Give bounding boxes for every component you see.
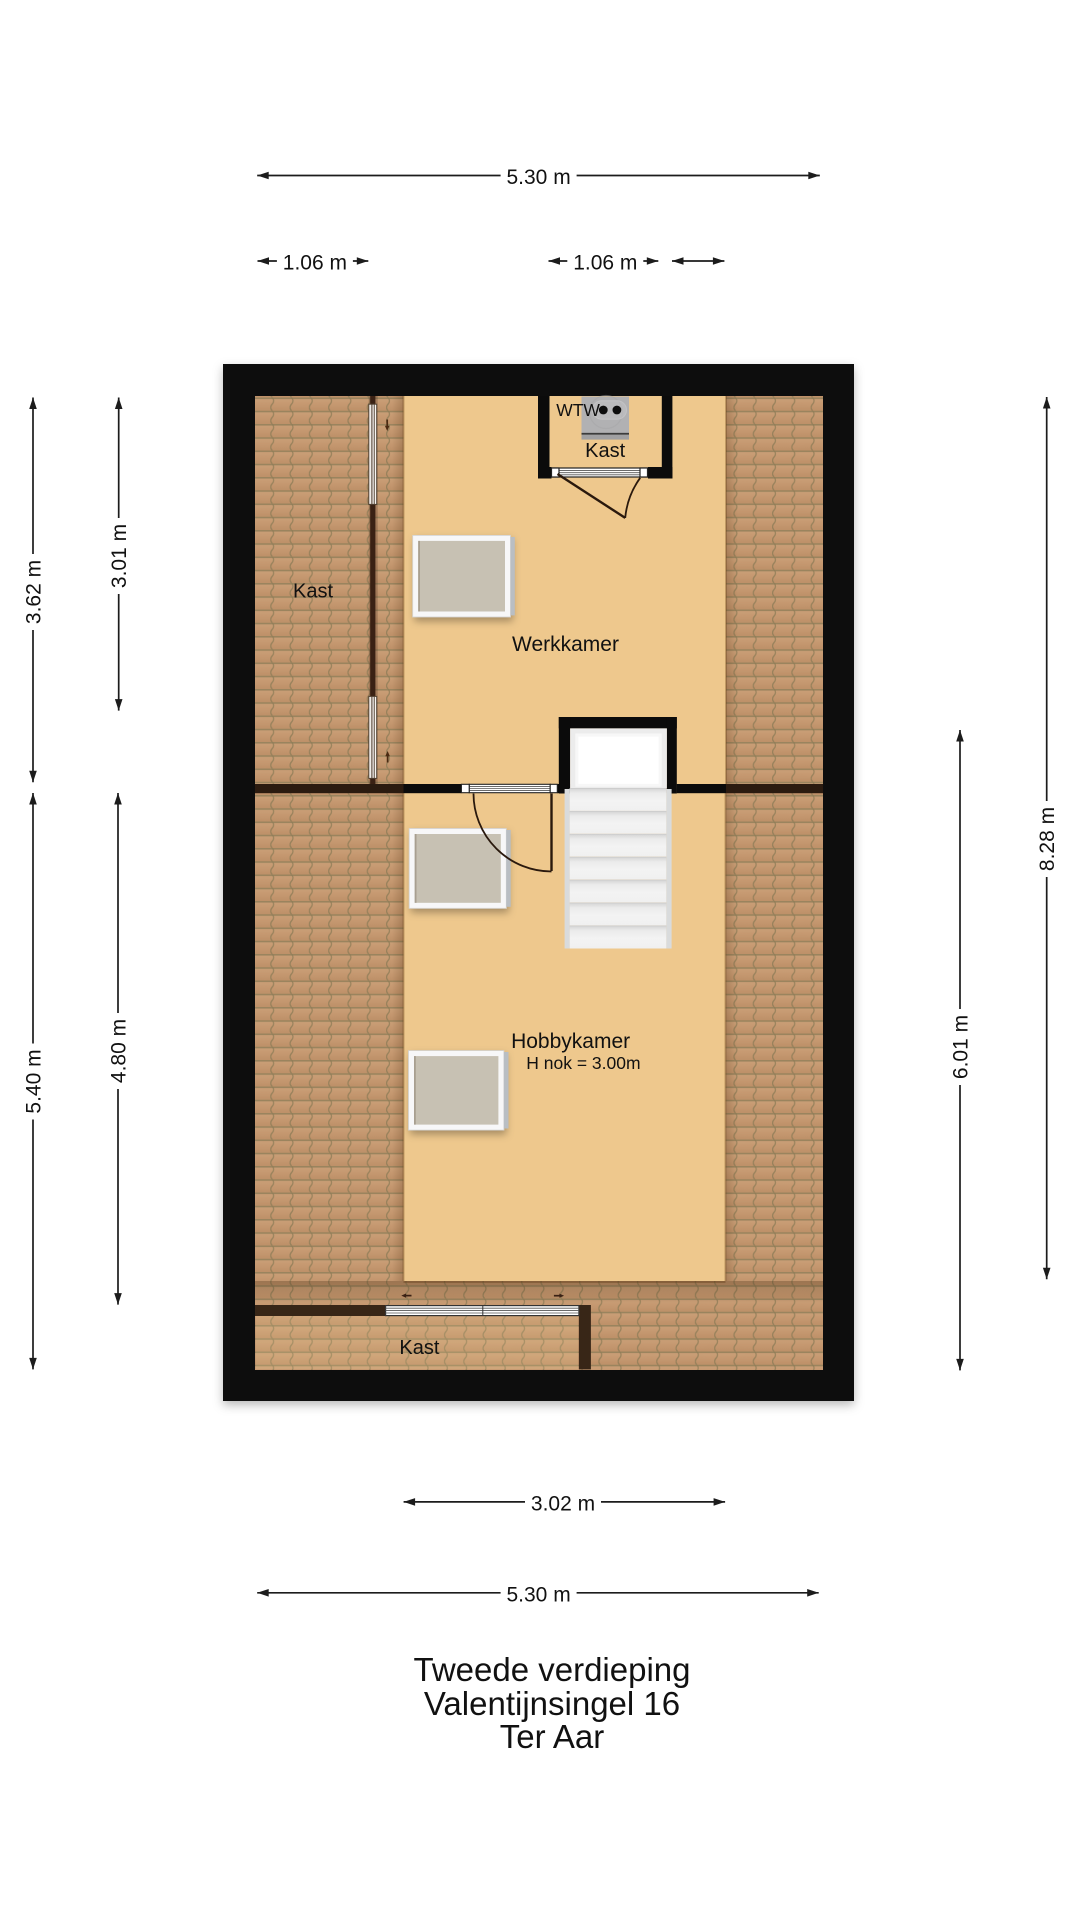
svg-text:H nok = 3.00m: H nok = 3.00m — [526, 1053, 640, 1073]
svg-text:3.62 m: 3.62 m — [23, 560, 46, 624]
svg-text:3.02 m: 3.02 m — [531, 1493, 595, 1516]
svg-text:5.40 m: 5.40 m — [23, 1049, 46, 1113]
svg-text:8.28 m: 8.28 m — [1036, 807, 1059, 871]
svg-text:6.01 m: 6.01 m — [950, 1015, 973, 1079]
svg-text:Valentijnsingel 16: Valentijnsingel 16 — [424, 1685, 680, 1722]
svg-text:3.01 m: 3.01 m — [108, 524, 131, 588]
svg-text:1.06 m: 1.06 m — [573, 252, 637, 275]
svg-text:5.30 m: 5.30 m — [506, 166, 570, 189]
svg-text:Werkkamer: Werkkamer — [512, 633, 619, 656]
svg-text:4.80 m: 4.80 m — [108, 1019, 131, 1083]
svg-text:5.30 m: 5.30 m — [506, 1584, 570, 1607]
svg-text:Kast: Kast — [293, 581, 333, 603]
svg-text:Ter Aar: Ter Aar — [500, 1718, 605, 1755]
svg-text:Tweede verdieping: Tweede verdieping — [413, 1651, 690, 1688]
svg-text:Kast: Kast — [399, 1337, 439, 1359]
svg-text:Hobbykamer: Hobbykamer — [511, 1030, 630, 1053]
svg-text:Kast: Kast — [585, 440, 625, 462]
svg-text:1.06 m: 1.06 m — [283, 252, 347, 275]
svg-text:WTW: WTW — [556, 400, 600, 420]
